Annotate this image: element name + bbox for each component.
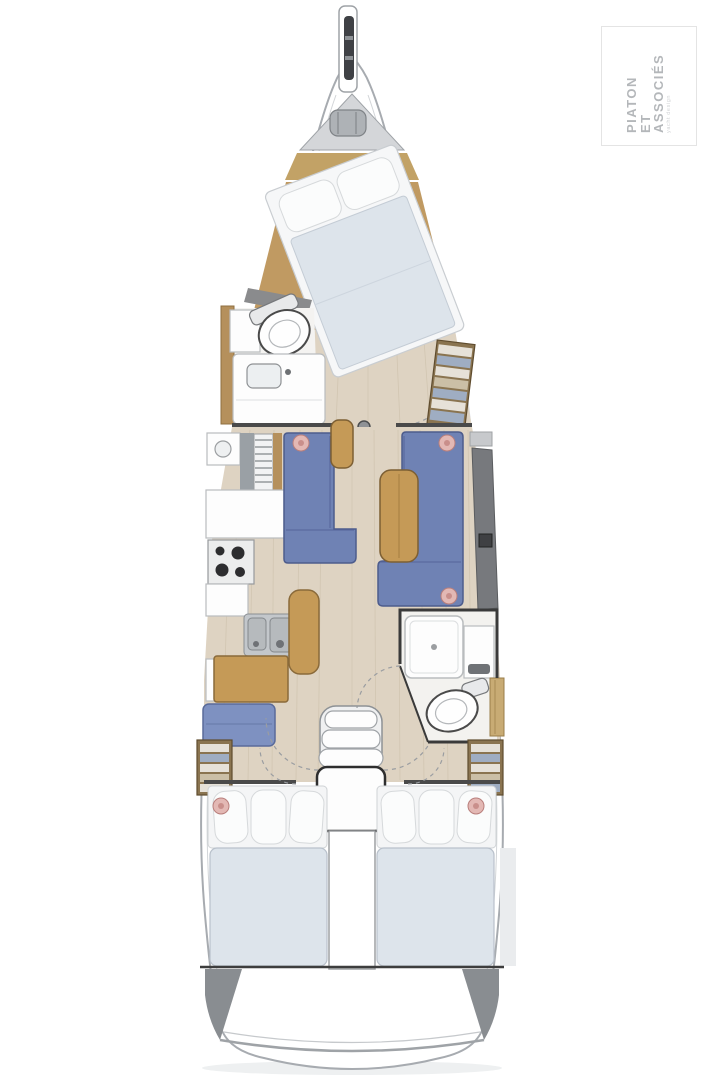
hull-panel-starboard bbox=[500, 848, 516, 966]
logo-line-2: ET bbox=[639, 113, 653, 133]
aft-pillow bbox=[212, 790, 249, 844]
forward-sink bbox=[247, 364, 281, 388]
galley-stove bbox=[208, 540, 254, 584]
step-tread bbox=[322, 730, 380, 748]
aft-mattress-starboard bbox=[377, 848, 494, 966]
sink-faucet bbox=[253, 641, 259, 647]
stove-burner bbox=[235, 567, 245, 577]
galley-counter bbox=[206, 490, 284, 538]
shower-drain bbox=[431, 644, 437, 650]
anchor-roller-pin bbox=[345, 36, 353, 40]
step-tread bbox=[325, 711, 377, 728]
logo-line-3: ASSOCIÉS bbox=[652, 54, 666, 133]
stove-burner bbox=[216, 564, 229, 577]
dinette-table bbox=[331, 420, 353, 468]
galley-counter-aft bbox=[206, 584, 248, 616]
galley-round-sink bbox=[215, 441, 231, 457]
anchor-roller bbox=[344, 16, 354, 80]
center-divider bbox=[329, 831, 375, 969]
stove-burner bbox=[232, 547, 245, 560]
aft-sink bbox=[468, 664, 490, 674]
windlass bbox=[330, 110, 366, 136]
sink-faucet bbox=[276, 640, 284, 648]
galley-island-bench bbox=[289, 590, 319, 674]
storage-hatch bbox=[479, 534, 492, 547]
stove-burner bbox=[216, 547, 225, 556]
designer-logo: PIATON ET ASSOCIÉS yacht design bbox=[601, 26, 697, 146]
aft-mattress-port bbox=[210, 848, 327, 966]
nav-desk bbox=[214, 656, 288, 702]
aft-pillow bbox=[288, 790, 325, 844]
forward-vanity bbox=[233, 354, 325, 424]
logo-line-1: PIATON bbox=[625, 76, 639, 133]
aft-pillow bbox=[419, 790, 454, 844]
page: PIATON ET ASSOCIÉS yacht design bbox=[0, 0, 713, 1080]
forward-head bbox=[221, 292, 325, 424]
aft-cabin-starboard bbox=[377, 786, 496, 966]
forward-faucet bbox=[285, 369, 291, 375]
galley-trim bbox=[273, 433, 282, 490]
galley-gray-panel bbox=[240, 433, 254, 490]
cabinet-starboard bbox=[470, 432, 492, 446]
aft-head-wood-strip bbox=[490, 678, 504, 736]
aft-pillow bbox=[251, 790, 286, 844]
aft-pillow bbox=[380, 790, 417, 844]
step-tread bbox=[319, 749, 383, 767]
aft-cabin-port bbox=[208, 786, 327, 966]
yacht-floor-plan bbox=[0, 0, 713, 1080]
nav-station-port bbox=[203, 656, 288, 746]
anchor-roller-pin bbox=[345, 56, 353, 60]
designer-logo-text: PIATON ET ASSOCIÉS yacht design bbox=[602, 39, 696, 133]
logo-tagline: yacht design bbox=[667, 95, 673, 133]
